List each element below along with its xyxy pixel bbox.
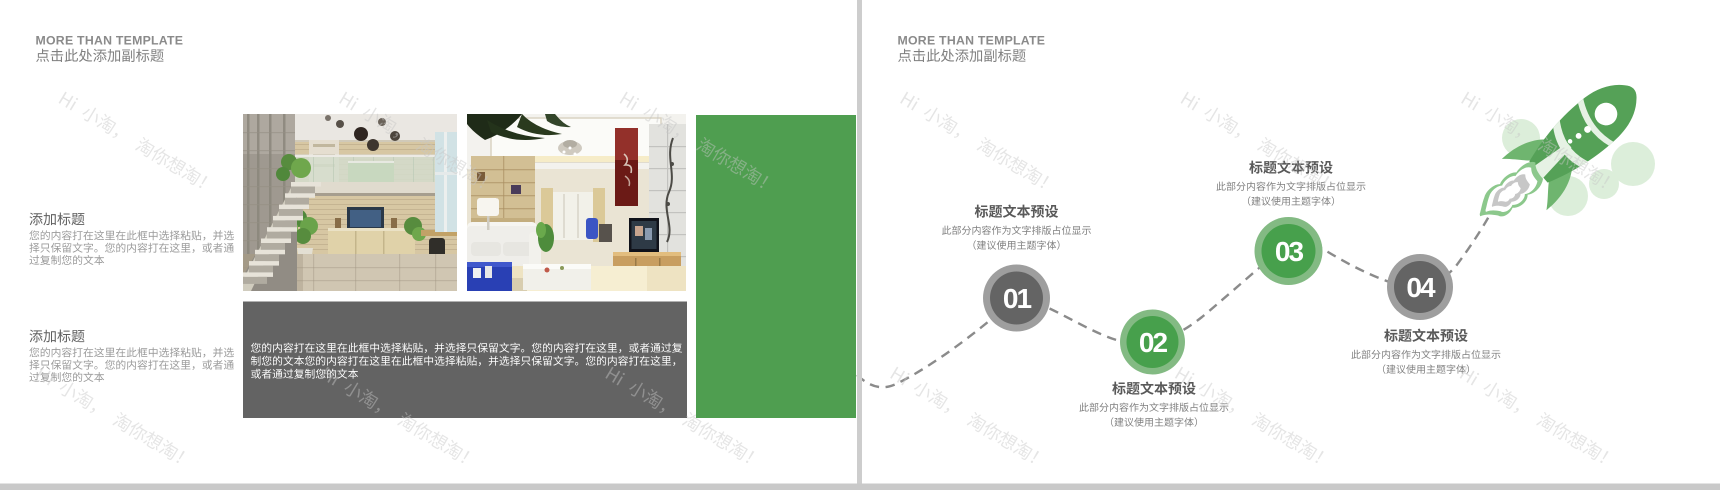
svg-text:01: 01 — [1003, 283, 1032, 314]
svg-text:04: 04 — [1406, 272, 1436, 303]
svg-text:02: 02 — [1139, 327, 1168, 358]
svg-text:MORE THAN TEMPLATE: MORE THAN TEMPLATE — [36, 34, 184, 48]
svg-text:MORE THAN TEMPLATE: MORE THAN TEMPLATE — [898, 34, 1046, 48]
svg-text:03: 03 — [1275, 236, 1304, 267]
